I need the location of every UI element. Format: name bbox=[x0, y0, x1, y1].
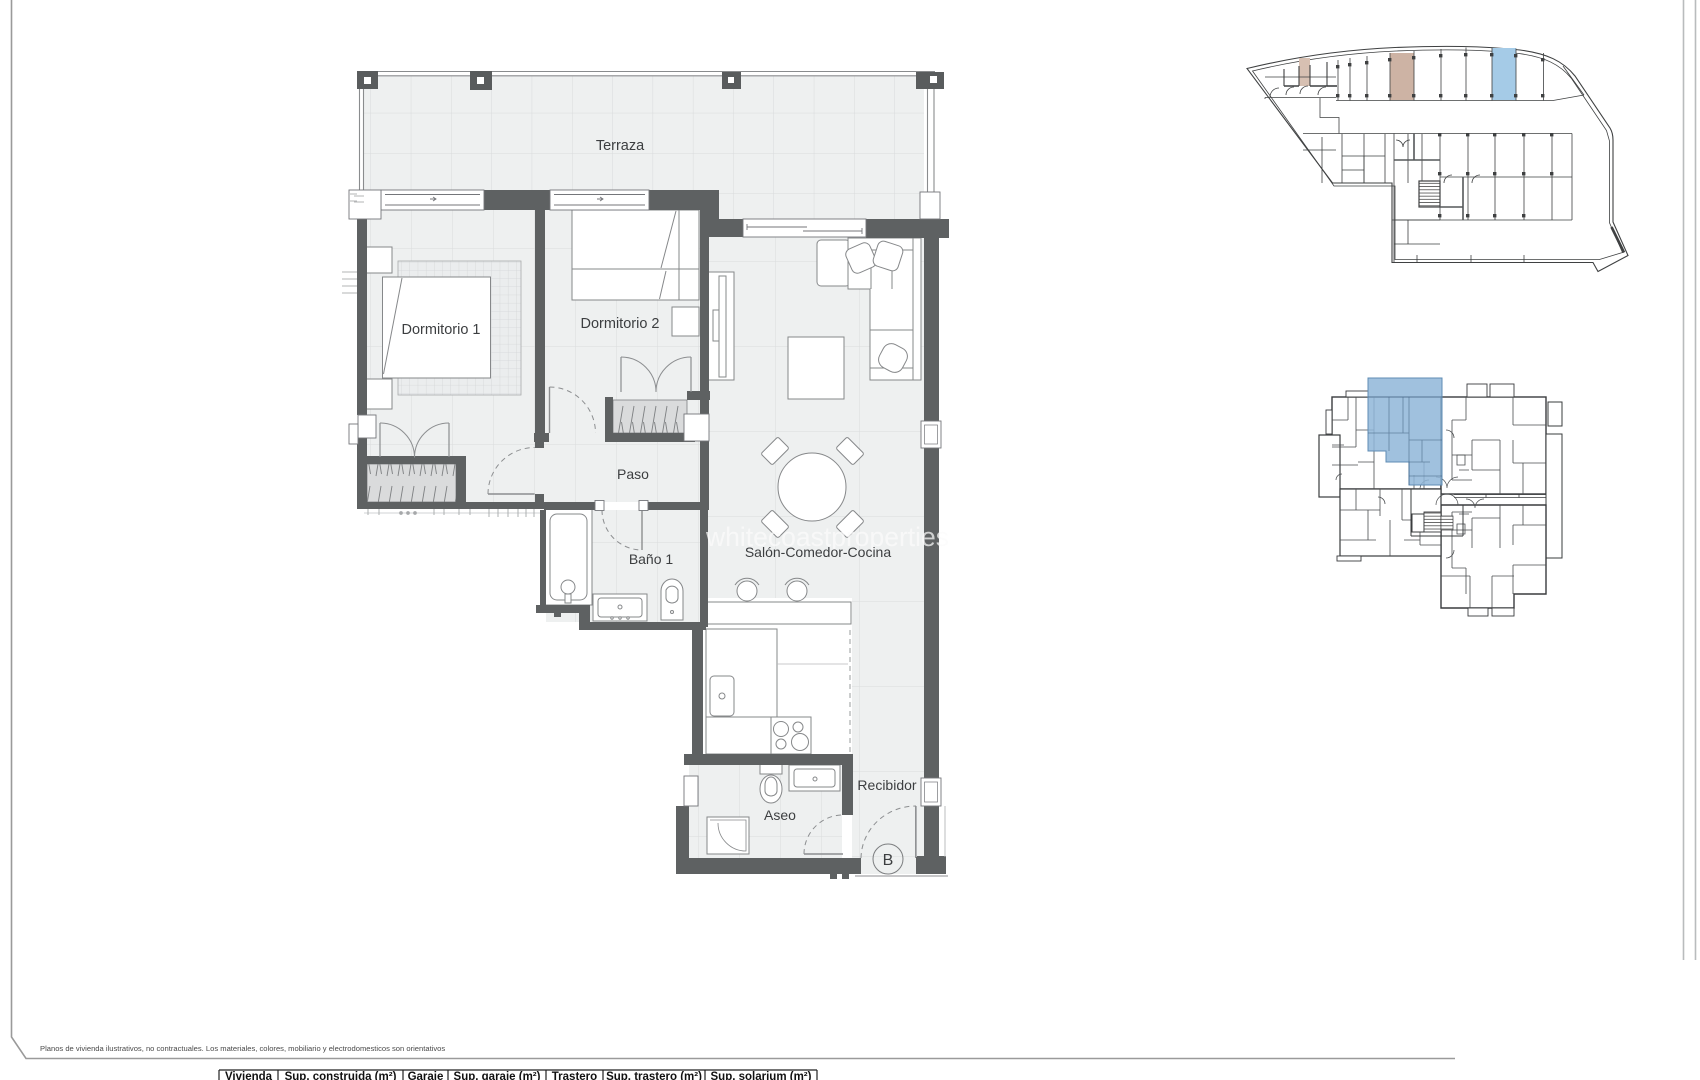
svg-text:Sup. solarium (m²): Sup. solarium (m²) bbox=[711, 1071, 812, 1080]
svg-text:Salón-Comedor-Cocina: Salón-Comedor-Cocina bbox=[745, 544, 892, 560]
svg-text:Recibidor: Recibidor bbox=[857, 777, 916, 793]
svg-text:Sup. trastero (m²): Sup. trastero (m²) bbox=[606, 1071, 702, 1080]
svg-text:B: B bbox=[883, 852, 894, 869]
svg-text:Dormitorio 2: Dormitorio 2 bbox=[581, 316, 660, 332]
svg-text:Garaje: Garaje bbox=[408, 1071, 444, 1080]
svg-text:Dormitorio 1: Dormitorio 1 bbox=[402, 322, 481, 338]
svg-text:Baño 1: Baño 1 bbox=[629, 551, 674, 567]
svg-text:Paso: Paso bbox=[617, 466, 649, 482]
svg-text:Planos de vivienda ilustrativo: Planos de vivienda ilustrativos, no cont… bbox=[40, 1044, 445, 1053]
svg-text:Terraza: Terraza bbox=[596, 138, 645, 154]
svg-text:Trastero: Trastero bbox=[552, 1071, 597, 1080]
svg-text:Vivienda: Vivienda bbox=[225, 1071, 273, 1080]
svg-text:Sup. garaje (m²): Sup. garaje (m²) bbox=[454, 1071, 541, 1080]
svg-text:Sup. construida (m²): Sup. construida (m²) bbox=[285, 1071, 397, 1080]
svg-text:Aseo: Aseo bbox=[764, 807, 796, 823]
